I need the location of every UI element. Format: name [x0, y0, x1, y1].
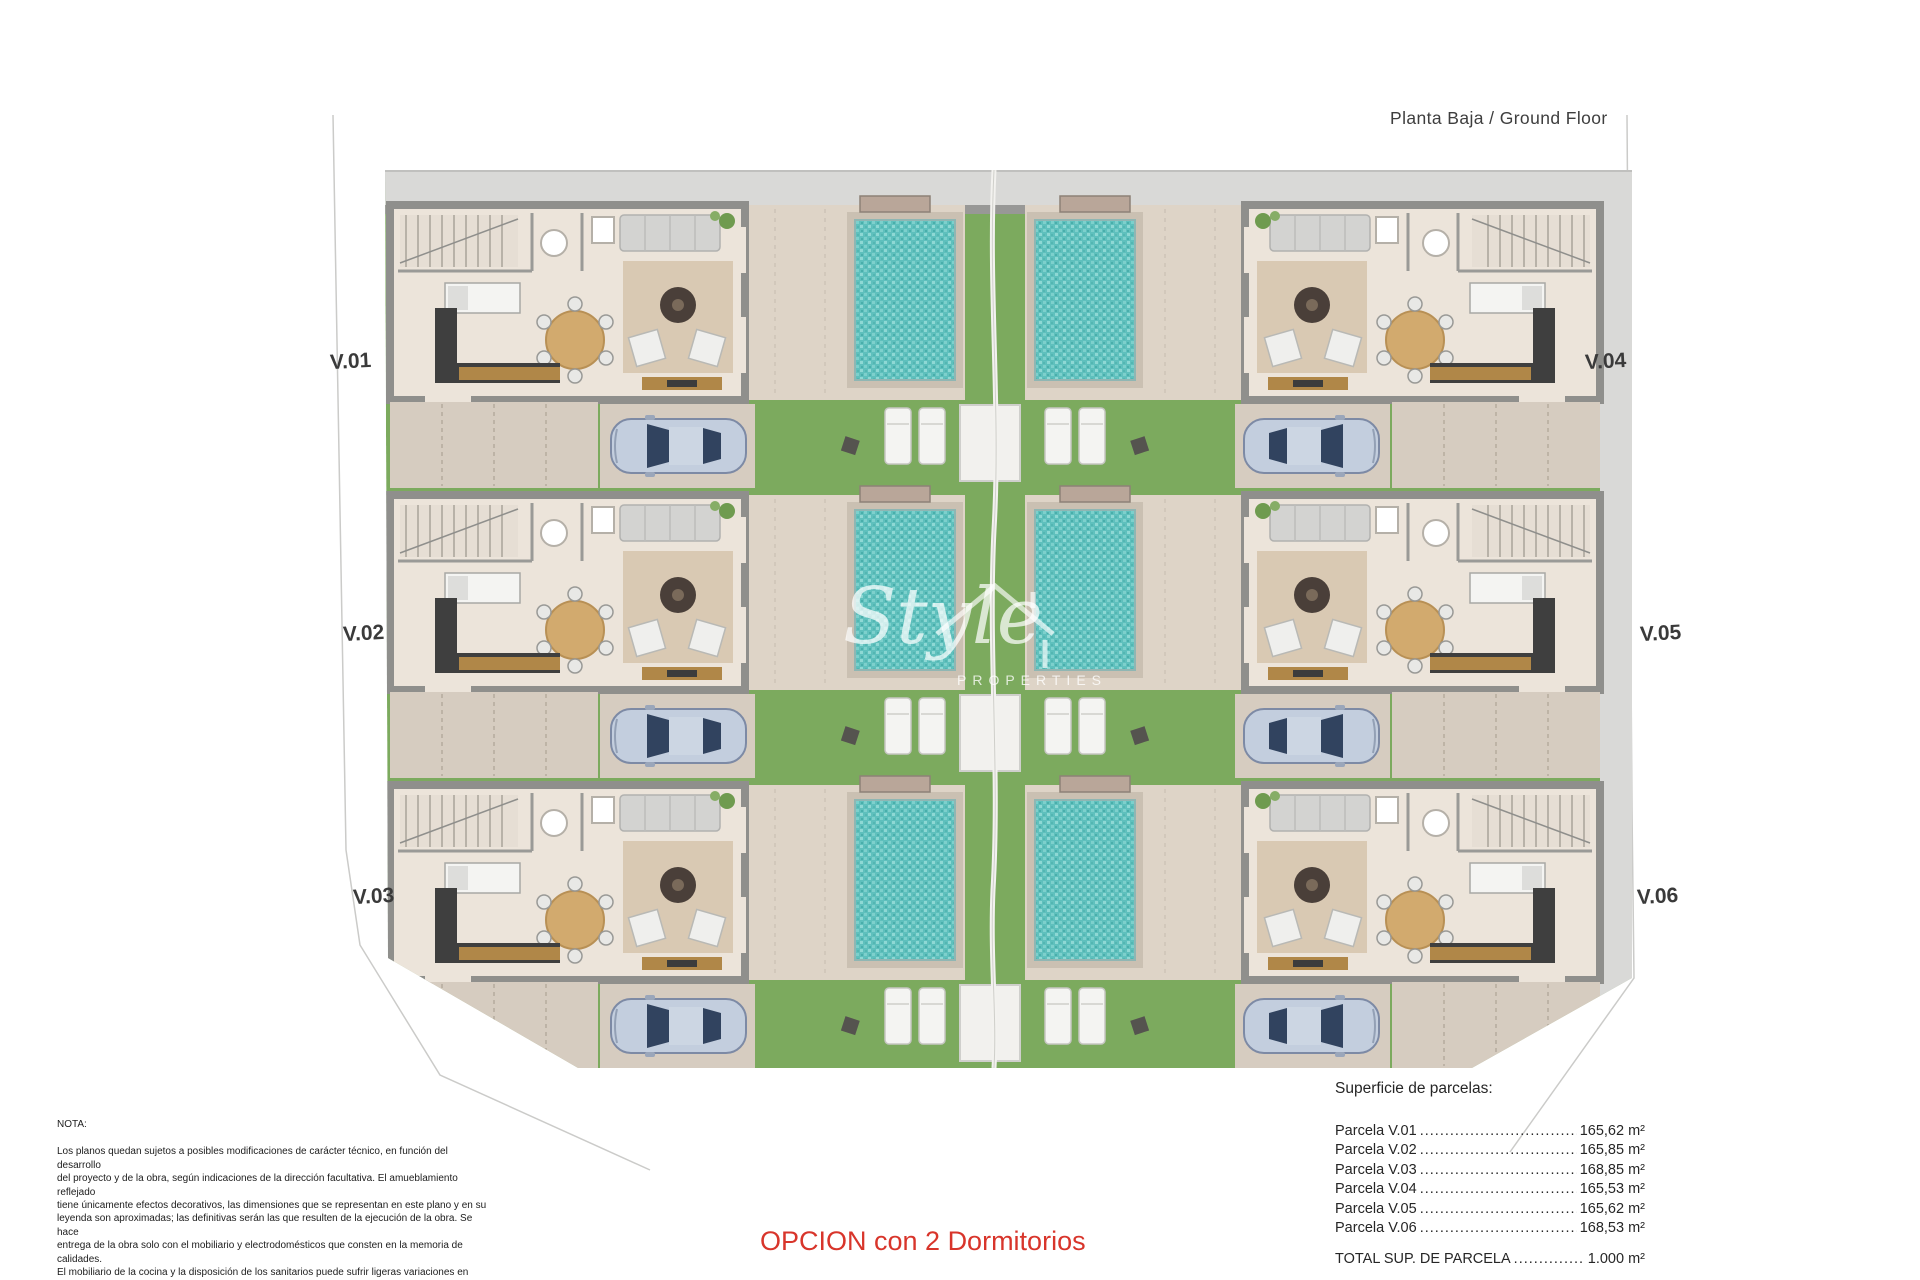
- parcel-row: Parcela V.06 ...........................…: [1335, 1219, 1645, 1238]
- nota-heading: NOTA:: [57, 1118, 487, 1131]
- parcel-value: 168,53 m²: [1580, 1219, 1645, 1238]
- nota-line: Los planos quedan sujetos a posibles mod…: [57, 1145, 487, 1172]
- leader-dots: ........................................: [1420, 1200, 1577, 1219]
- villa-label-v02: V.02: [342, 621, 384, 647]
- parcel-row: Parcela V.03 ...........................…: [1335, 1161, 1645, 1180]
- parcel-value: 165,53 m²: [1580, 1180, 1645, 1199]
- leader-dots: ........................................: [1420, 1180, 1577, 1199]
- nota-block: NOTA: Los planos quedan sujetos a posibl…: [57, 1118, 487, 1280]
- parcel-total-row: TOTAL SUP. DE PARCELA ..................…: [1335, 1250, 1645, 1269]
- leader-dots: ........................................: [1514, 1250, 1585, 1269]
- parcel-total-label: TOTAL SUP. DE PARCELA: [1335, 1250, 1511, 1269]
- parcel-value: 165,85 m²: [1580, 1141, 1645, 1160]
- leader-dots: ........................................: [1420, 1141, 1577, 1160]
- parcel-total-value: 1.000 m²: [1588, 1250, 1645, 1269]
- parcel-label: Parcela V.03: [1335, 1161, 1417, 1180]
- nota-line: El mobiliario de la cocina y la disposic…: [57, 1266, 487, 1280]
- parcel-row: Parcela V.02 ...........................…: [1335, 1141, 1645, 1160]
- parcel-row: Parcela V.04 ...........................…: [1335, 1180, 1645, 1199]
- nota-line: tiene únicamente efectos decorativos, la…: [57, 1199, 487, 1212]
- option-label: OPCION con 2 Dormitorios: [760, 1226, 1086, 1257]
- villa-label-v01: V.01: [329, 349, 371, 375]
- parcel-value: 165,62 m²: [1580, 1122, 1645, 1141]
- leader-dots: ........................................: [1420, 1122, 1577, 1141]
- villa-label-v06: V.06: [1636, 884, 1678, 910]
- parcel-label: Parcela V.02: [1335, 1141, 1417, 1160]
- parcel-row: Parcela V.01 ...........................…: [1335, 1122, 1645, 1141]
- villa-label-v04: V.04: [1584, 349, 1626, 375]
- nota-line: del proyecto y de la obra, según indicac…: [57, 1172, 487, 1199]
- villa-label-v03: V.03: [352, 884, 394, 910]
- leader-dots: ........................................: [1420, 1161, 1577, 1180]
- nota-line: entrega de la obra solo con el mobiliari…: [57, 1239, 487, 1266]
- parcel-value: 168,85 m²: [1580, 1161, 1645, 1180]
- parcel-row: Parcela V.05 ...........................…: [1335, 1200, 1645, 1219]
- nota-line: leyenda son aproximadas; las definitivas…: [57, 1212, 487, 1239]
- floor-plan-page: Planta Baja / Ground Floor: [0, 0, 1920, 1280]
- parcel-label: Parcela V.04: [1335, 1180, 1417, 1199]
- villa-label-v05: V.05: [1639, 621, 1681, 647]
- parcel-areas-heading: Superficie de parcelas:: [1335, 1080, 1645, 1098]
- site-plan: [320, 110, 1660, 1180]
- parcel-value: 165,62 m²: [1580, 1200, 1645, 1219]
- parcel-areas-block: Superficie de parcelas: Parcela V.01 ...…: [1335, 1080, 1645, 1270]
- parcel-label: Parcela V.01: [1335, 1122, 1417, 1141]
- leader-dots: ........................................: [1420, 1219, 1577, 1238]
- parcel-label: Parcela V.06: [1335, 1219, 1417, 1238]
- parcel-label: Parcela V.05: [1335, 1200, 1417, 1219]
